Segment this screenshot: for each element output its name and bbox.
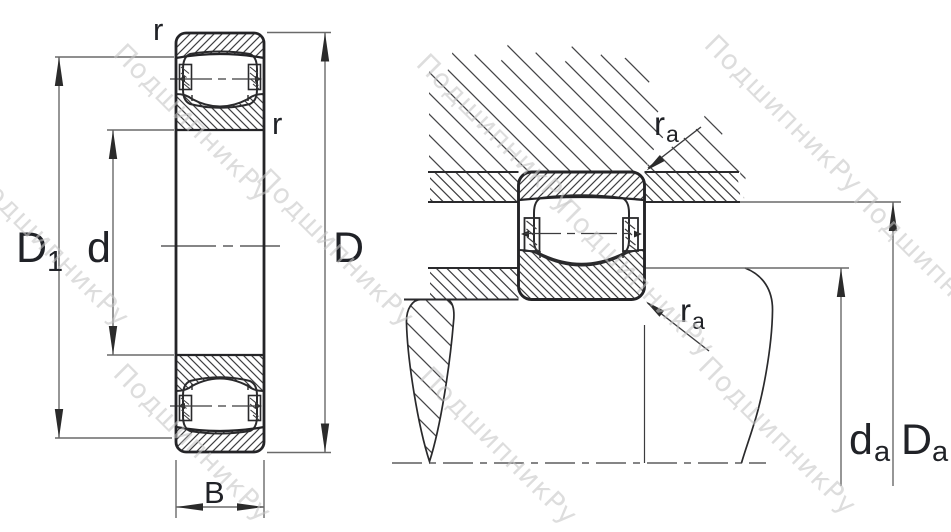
dim-label-r-top: r [153, 12, 163, 47]
watermark-text: ПодшипникРу [847, 183, 951, 354]
arrowhead-icon [109, 130, 117, 159]
arrowhead-icon [321, 33, 329, 62]
watermark-text: ПодшипникРу [250, 163, 421, 334]
arrowhead-icon [321, 424, 329, 453]
watermark-text: ПодшипникРу [692, 351, 863, 522]
shaft-shoulder-hatch [430, 269, 519, 299]
watermark-text: ПодшипникРу [413, 361, 584, 532]
dim-label-ra-top-sub: a [666, 121, 679, 147]
dim-label-ra-top: r [654, 105, 665, 142]
bearing-dimension-drawing: D 1 d D B r r [0, 0, 951, 532]
dim-label-d: d [87, 224, 111, 272]
dim-label-Da: D [901, 416, 932, 464]
housing-shoulder-left-hatch [430, 173, 519, 202]
cage-pocket [249, 396, 261, 421]
arrowhead-icon [176, 503, 203, 511]
dim-label-da: d [849, 416, 873, 464]
cage-pocket [180, 65, 192, 90]
dim-label-r-inner: r [272, 106, 282, 141]
arrowhead-icon [55, 57, 63, 86]
arrowhead-icon [55, 409, 63, 438]
inner-ring-bottom-hatch [176, 355, 264, 391]
bearing-outline [176, 33, 264, 452]
drawing-canvas: D 1 d D B r r [0, 0, 951, 532]
housing-shoulder-right-hatch [645, 173, 742, 201]
dim-label-Da-sub: a [932, 436, 949, 468]
cage-pocket [249, 65, 261, 90]
bearing-section-hatching [176, 33, 264, 452]
dim-label-da-sub: a [874, 436, 891, 468]
arrowhead-icon [837, 268, 845, 297]
